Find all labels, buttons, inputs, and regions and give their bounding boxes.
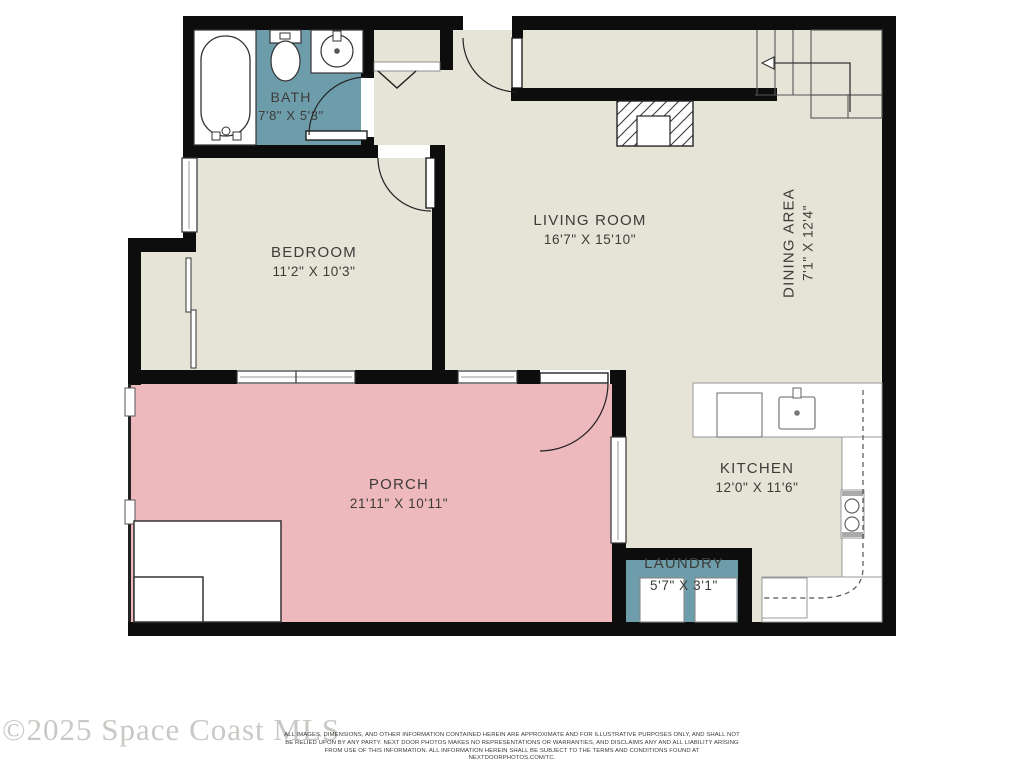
room-name: PORCH: [350, 476, 448, 493]
room-dims: 5'7" X 3'1": [644, 578, 724, 593]
bypass-closet-door: [191, 310, 196, 368]
stove-burner-icon: [845, 499, 859, 513]
room-dims: 7'1" X 12'4": [801, 188, 816, 298]
room-name: LIVING ROOM: [533, 212, 646, 229]
front-door-leaf: [512, 38, 522, 88]
room-name: LAUNDRY: [644, 555, 724, 572]
room-dims: 16'7" X 15'10": [533, 232, 646, 247]
window-porch-west-1: [125, 388, 135, 416]
room-name: DINING AREA: [781, 188, 798, 298]
room-name: KITCHEN: [715, 460, 798, 477]
range: [717, 393, 762, 437]
room-dims: 11'2" X 10'3": [271, 264, 357, 279]
stove-burner-icon: [845, 517, 859, 531]
room-label-bath: BATH 7'8" X 5'3": [258, 89, 324, 123]
room-label-porch: PORCH 21'11" X 10'11": [350, 476, 448, 511]
room-label-kitchen: KITCHEN 12'0" X 11'6": [715, 460, 798, 495]
floorplan-drawing: [0, 0, 1024, 768]
room-label-bedroom: BEDROOM 11'2" X 10'3": [271, 244, 357, 279]
fireplace-chimney: [617, 101, 693, 146]
bath-door-leaf: [306, 131, 367, 140]
room-name: BEDROOM: [271, 244, 357, 261]
room-label-laundry: LAUNDRY 5'7" X 3'1": [644, 555, 724, 593]
porch-steps: [134, 521, 281, 622]
bedroom-door-leaf: [426, 158, 435, 208]
room-name: BATH: [258, 89, 324, 105]
bypass-closet-door: [186, 258, 191, 312]
porch-door-leaf: [540, 373, 608, 383]
room-dims: 7'8" X 5'3": [258, 108, 324, 123]
toilet-bowl: [271, 41, 300, 81]
tub-faucet-icon: [222, 127, 230, 135]
room-label-dining-area: DINING AREA 7'1" X 12'4": [781, 188, 816, 298]
bathtub: [201, 36, 250, 136]
room-label-living-room: LIVING ROOM 16'7" X 15'10": [533, 212, 646, 247]
disclaimer-text: ALL IMAGES, DIMENSIONS, AND OTHER INFORM…: [281, 732, 743, 763]
room-dims: 12'0" X 11'6": [715, 480, 798, 495]
floorplan-canvas: BATH 7'8" X 5'3" BEDROOM 11'2" X 10'3" L…: [0, 0, 1024, 768]
room-dims: 21'11" X 10'11": [350, 496, 448, 511]
